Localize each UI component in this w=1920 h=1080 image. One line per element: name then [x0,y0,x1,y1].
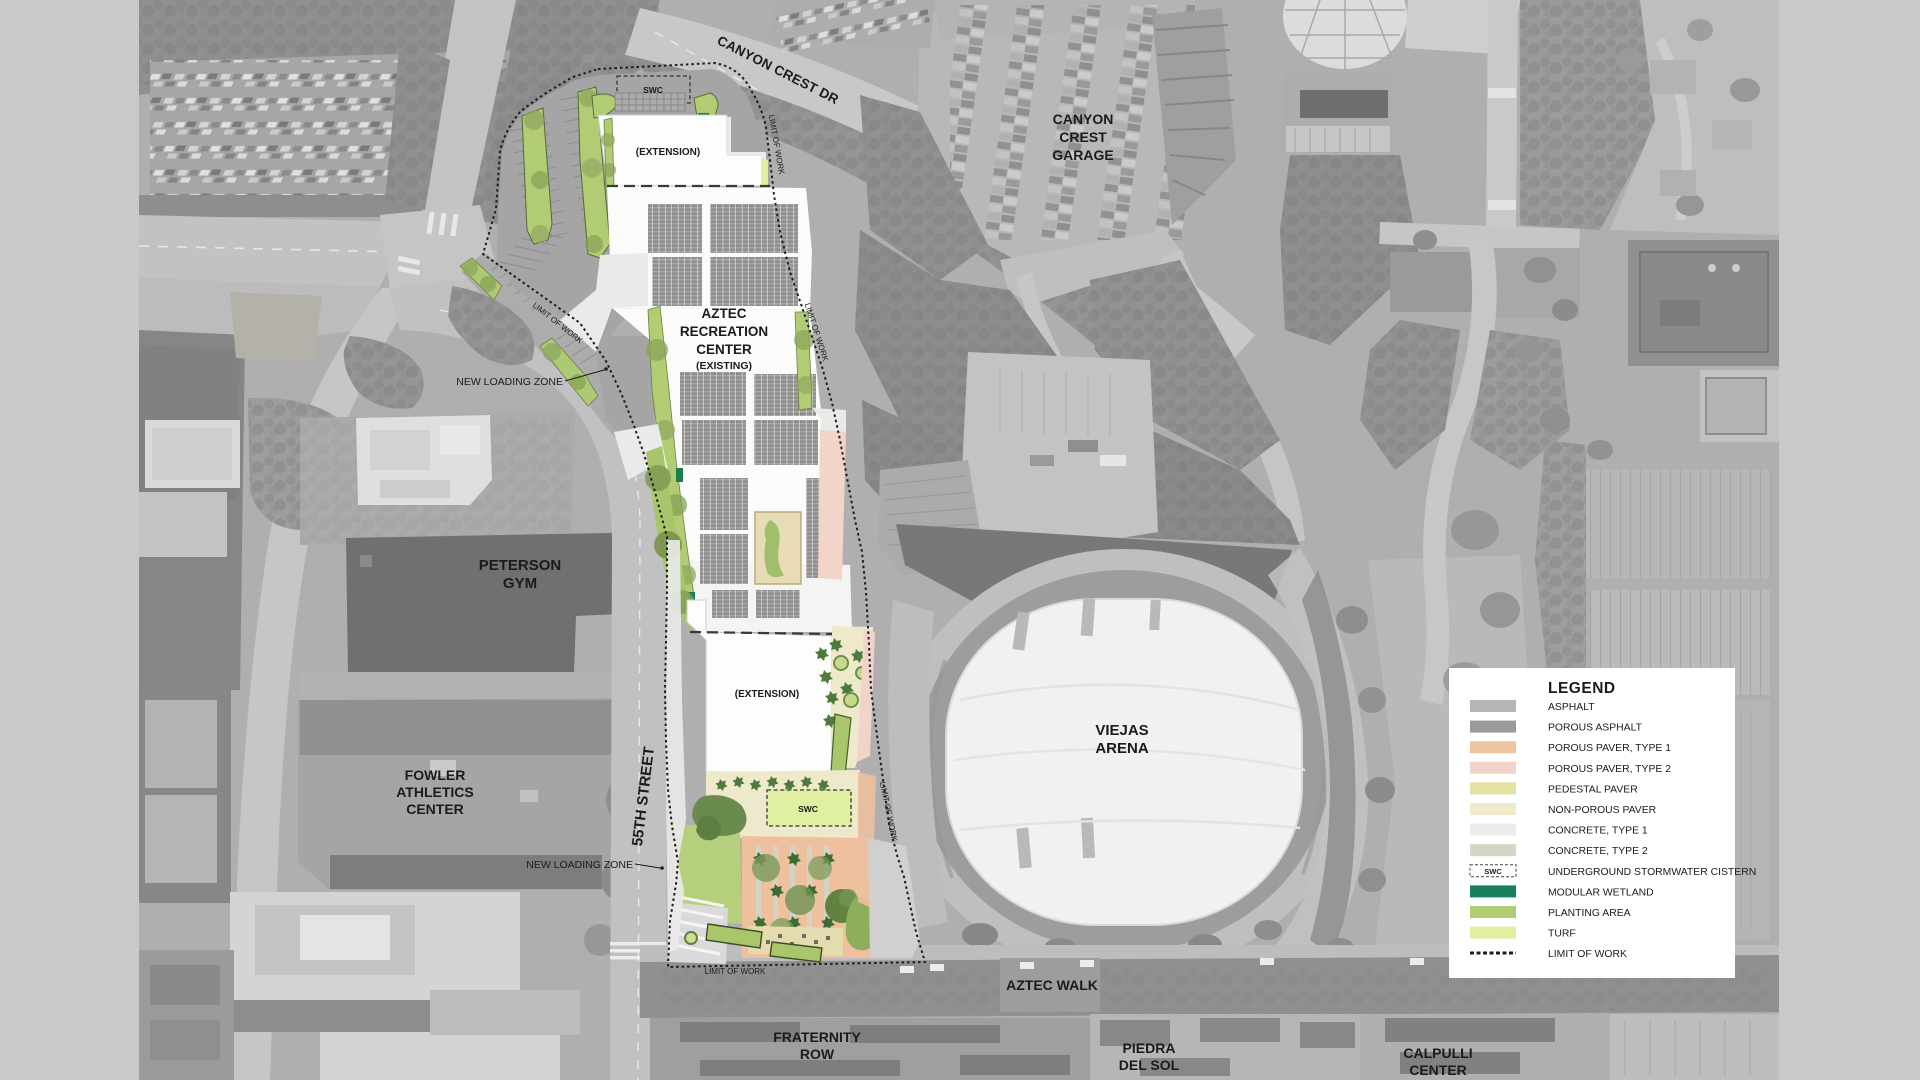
svg-text:NEW LOADING ZONE: NEW LOADING ZONE [526,859,633,871]
svg-text:TURF: TURF [1548,929,1576,940]
svg-text:CONCRETE, TYPE 2: CONCRETE, TYPE 2 [1548,846,1648,857]
svg-text:PIEDRA: PIEDRA [1123,1040,1176,1056]
svg-text:CREST: CREST [1059,129,1107,145]
svg-text:NEW LOADING ZONE: NEW LOADING ZONE [456,376,563,388]
svg-text:SWC: SWC [1484,867,1502,876]
svg-text:SWC: SWC [798,804,818,814]
svg-text:AZTEC WALK: AZTEC WALK [1006,977,1098,993]
svg-text:GYM: GYM [503,575,537,592]
svg-text:POROUS PAVER, TYPE 2: POROUS PAVER, TYPE 2 [1548,764,1671,775]
svg-text:POROUS PAVER, TYPE 1: POROUS PAVER, TYPE 1 [1548,743,1671,754]
svg-text:(EXTENSION): (EXTENSION) [636,147,700,158]
svg-text:ASPHALT: ASPHALT [1548,702,1595,713]
svg-text:RECREATION: RECREATION [680,324,768,339]
svg-text:PETERSON: PETERSON [479,557,562,574]
svg-text:PEDESTAL PAVER: PEDESTAL PAVER [1548,784,1638,795]
svg-text:UNDERGROUND STORMWATER CISTERN: UNDERGROUND STORMWATER CISTERN [1548,867,1756,878]
svg-text:ARENA: ARENA [1095,740,1149,757]
svg-text:DEL SOL: DEL SOL [1119,1057,1180,1073]
svg-text:CANYON: CANYON [1053,111,1114,127]
svg-text:VIEJAS: VIEJAS [1095,722,1148,739]
svg-text:LIMIT OF WORK: LIMIT OF WORK [1548,949,1627,960]
svg-text:PLANTING AREA: PLANTING AREA [1548,908,1631,919]
svg-text:GARAGE: GARAGE [1052,147,1113,163]
svg-text:NON-POROUS PAVER: NON-POROUS PAVER [1548,805,1657,816]
svg-text:CENTER: CENTER [1409,1062,1467,1078]
svg-text:CONCRETE, TYPE 1: CONCRETE, TYPE 1 [1548,826,1648,837]
svg-text:(EXTENSION): (EXTENSION) [735,689,799,700]
svg-text:CENTER: CENTER [696,342,752,357]
svg-text:FRATERNITY: FRATERNITY [773,1029,861,1045]
svg-text:FOWLER: FOWLER [405,767,466,783]
svg-text:AZTEC: AZTEC [702,306,747,321]
svg-text:LEGEND: LEGEND [1548,680,1616,697]
svg-text:ROW: ROW [800,1046,835,1062]
svg-text:SWC: SWC [643,85,663,95]
svg-text:MODULAR WETLAND: MODULAR WETLAND [1548,887,1654,898]
svg-text:ATHLETICS: ATHLETICS [396,784,474,800]
svg-text:CENTER: CENTER [406,801,464,817]
svg-text:(EXISTING): (EXISTING) [696,360,752,372]
svg-text:POROUS ASPHALT: POROUS ASPHALT [1548,723,1643,734]
svg-text:LIMIT OF WORK: LIMIT OF WORK [705,967,766,976]
svg-text:CALPULLI: CALPULLI [1403,1045,1472,1061]
